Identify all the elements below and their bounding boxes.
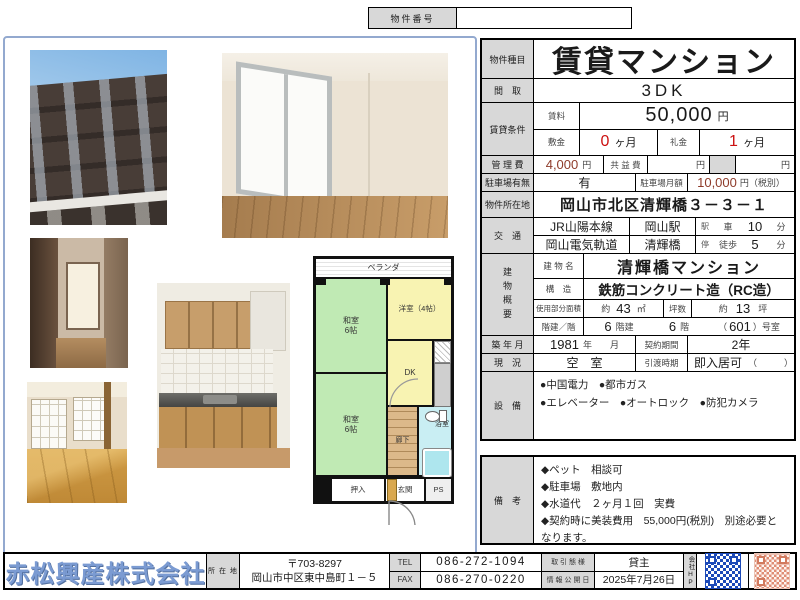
transit-label: 交 通 [482, 218, 534, 253]
tile-wall [161, 349, 273, 393]
remarks-label: 備 考 [482, 457, 534, 543]
transit-line: 岡山電気軌道 [534, 236, 630, 253]
photo-hallway [30, 238, 128, 368]
company-postal: 〒703-8297 [287, 557, 342, 571]
property-address: 岡山市北区清輝橋３－３－１ [534, 192, 794, 217]
fax-label: FAX [390, 572, 421, 589]
parking-fee-value: 10,000 円（税別） [688, 174, 794, 191]
lower-cabinets [159, 407, 277, 449]
building-name: 清輝橋マンション [584, 254, 794, 278]
deposit-label: 敷金 [534, 130, 580, 156]
door-arc-dk [388, 377, 420, 409]
remarks-item: ◆水道代 ２ヶ月１回 実費 [541, 496, 787, 513]
photo-tatami-room [27, 382, 127, 503]
floor-plan: ベランダ 和室 6帖 洋室（4帖） DK 和室 6帖 廊下 浴室 押入 玄関 P… [313, 256, 454, 504]
handover-label: 引渡時期 [636, 354, 688, 371]
tsubo-value: 約 13 坪 [692, 300, 794, 317]
address-label: 物件所在地 [482, 192, 534, 217]
qr-code-orange [749, 554, 795, 588]
rent-value: 50,000 円 [580, 103, 794, 129]
transit-minutes: 5 [742, 236, 768, 253]
floors-label: 階建／階 [534, 318, 584, 335]
type-label: 物件種目 [482, 40, 534, 78]
room-ps: PS [424, 477, 451, 501]
deal-type-label: 取 引 態 様 [542, 554, 595, 571]
built-date-label: 築 年 月 [482, 336, 534, 353]
common-fee-label: 共 益 費 [604, 156, 648, 173]
contract-term-value: 2年 [688, 336, 794, 353]
remarks-item: ◆契約時に美装費用 55,000円(税別) 別途必要となります。 [541, 513, 787, 547]
sink [203, 395, 237, 404]
qr-code-icon [755, 554, 789, 588]
kitchen-unit [434, 363, 451, 407]
bathtub-icon [423, 449, 451, 477]
deal-type-value: 貸主 [595, 554, 683, 571]
common-fee-value: 円 [648, 156, 710, 173]
transit-line: JR山陽本線 [534, 218, 630, 235]
management-fee-value: 4,000 円 [534, 156, 604, 173]
tsubo-label: 坪数 [664, 300, 692, 317]
company-name: 赤松興産株式会社 [5, 554, 207, 588]
qr-code-blue [697, 554, 749, 588]
room-washitsu-bottom: 和室 6帖 [316, 374, 388, 477]
parking-label: 駐車場有無 [482, 174, 534, 191]
publish-date-value: 2025年7月26日 [595, 572, 683, 589]
hall-door [66, 262, 100, 330]
floors-value: 6 階建 [584, 318, 654, 335]
building-overview-label: 建物概要 [482, 254, 534, 335]
key-money-value: 1 ヶ月 [700, 130, 794, 156]
contract-term-label: 契約期間 [636, 336, 688, 353]
floor-area-value: 約 43 ㎡ [584, 300, 664, 317]
handover-value: 即入居可 （ ） [688, 354, 794, 371]
madori-label: 間 取 [482, 79, 534, 102]
tatami-floor [27, 449, 127, 503]
room-number: （ 601 ）号室 [704, 318, 794, 335]
wood-floor [222, 196, 448, 238]
equipment-list: ●中国電力 ●都市ガス ●エレベーター ●オートロック ●防犯カメラ [534, 372, 794, 439]
building-name-label: 建 物 名 [534, 254, 584, 278]
company-address-line: 岡山市中区東中島町１－５ [252, 571, 378, 585]
company-hp-label: 会社HP [684, 554, 697, 588]
balcony-window [236, 61, 332, 208]
room-oshiire: 押入 [332, 477, 386, 501]
remarks-item: ◆駐車場 敷地内 [541, 479, 787, 496]
remarks-item: ◆ペット 相談可 [541, 462, 787, 479]
equipment-label: 設 備 [482, 372, 534, 439]
fax-value: 086-270-0220 [421, 572, 541, 589]
floor-value: 6 階 [654, 318, 704, 335]
deposit-value: 0 ヶ月 [580, 130, 658, 156]
shoji-window [31, 399, 67, 449]
property-info-table: 物件種目 賃貸マンション 間 取 3DK 賃貸条件 賃料 50,000 円 敷金… [480, 38, 796, 441]
toilet-icon [425, 411, 440, 422]
property-number-label: 物件番号 [369, 8, 457, 28]
transit-row: 岡山電気軌道 清輝橋 停 徒歩 5 分 [534, 235, 794, 253]
tel-label: TEL [390, 554, 421, 571]
room-youshitsu: 洋室（4帖） [388, 279, 451, 341]
property-number-value [457, 8, 631, 28]
room-washitsu-top: 和室 6帖 [316, 279, 388, 374]
rent-label: 賃料 [534, 103, 580, 129]
property-type: 賃貸マンション [534, 40, 794, 78]
rental-conditions-label: 賃貸条件 [482, 103, 534, 155]
layout-value: 3DK [534, 79, 794, 102]
building-facade [30, 73, 167, 205]
room-veranda: ベランダ [316, 259, 451, 279]
tel-value: 086-272-1094 [421, 554, 541, 571]
remarks-list: ◆ペット 相談可 ◆駐車場 敷地内 ◆水道代 ２ヶ月１回 実費 ◆契約時に美装費… [534, 457, 794, 543]
company-phones: TEL 086-272-1094 FAX 086-270-0220 [390, 554, 542, 588]
company-location-label: 所 在 地 [207, 554, 240, 588]
remarks-box: 備 考 ◆ペット 相談可 ◆駐車場 敷地内 ◆水道代 ２ヶ月１回 実費 ◆契約時… [480, 455, 796, 545]
key-money-label: 礼金 [658, 130, 700, 156]
shoe-cabinet [387, 479, 397, 501]
parking-fee-label: 駐車場月額 [636, 174, 688, 191]
upper-cabinets [165, 301, 259, 349]
management-fee-label: 管 理 費 [482, 156, 534, 173]
room-rouka: 廊下 [388, 407, 419, 477]
deal-info: 取 引 態 様 貸主 情 報 公 開 日 2025年7月26日 [542, 554, 684, 588]
company-footer: 赤松興産株式会社 所 在 地 〒703-8297 岡山市中区東中島町１－５ TE… [3, 552, 797, 590]
transit-minutes: 10 [742, 218, 768, 235]
structure-label: 構 造 [534, 279, 584, 299]
photo-kitchen [157, 283, 290, 468]
qr-code-icon [706, 554, 740, 588]
parking-value: 有 [534, 174, 636, 191]
status-value: 空 室 [534, 354, 636, 371]
transit-row: JR山陽本線 岡山駅 駅 車 10 分 [534, 218, 794, 235]
shoji-window [73, 397, 105, 441]
transit-station: 清輝橋 [630, 236, 696, 253]
entrance-door-arc [385, 500, 425, 528]
built-date-value: 1981 年 月 [534, 336, 636, 353]
status-label: 現 況 [482, 354, 534, 371]
equipment-line: ●エレベーター ●オートロック ●防犯カメラ [540, 395, 788, 413]
equipment-line: ●中国電力 ●都市ガス [540, 377, 788, 395]
transit-station: 岡山駅 [630, 218, 696, 235]
washer-space [434, 341, 451, 363]
photo-building-exterior [30, 50, 167, 225]
photo-living-room [222, 53, 448, 238]
floor-area-label: 使用部分面積 [534, 300, 584, 317]
company-address: 〒703-8297 岡山市中区東中島町１－５ [240, 554, 390, 588]
property-number-box: 物件番号 [368, 7, 632, 29]
publish-date-label: 情 報 公 開 日 [542, 572, 595, 589]
structure-value: 鉄筋コンクリート造（RC造） [584, 279, 794, 299]
